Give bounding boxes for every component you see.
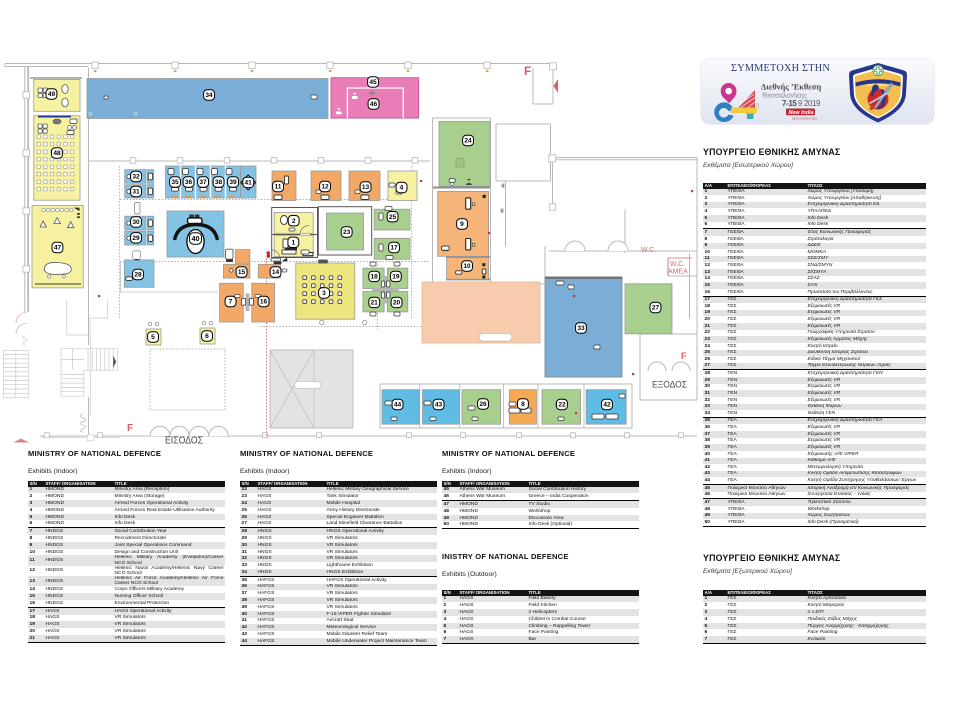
svg-text:12: 12 bbox=[321, 184, 329, 191]
svg-text:F: F bbox=[681, 351, 687, 361]
svg-text:22: 22 bbox=[558, 402, 566, 409]
svg-text:48: 48 bbox=[53, 150, 61, 157]
svg-text:35: 35 bbox=[171, 179, 179, 186]
svg-text:29: 29 bbox=[132, 235, 140, 242]
svg-text:41: 41 bbox=[245, 180, 253, 187]
svg-text:16: 16 bbox=[260, 299, 268, 306]
svg-text:W.C.: W.C. bbox=[641, 247, 656, 254]
svg-text:AMEA: AMEA bbox=[668, 269, 688, 276]
svg-text:47: 47 bbox=[54, 245, 62, 252]
svg-text:New India: New India bbox=[789, 110, 814, 116]
svg-text:27: 27 bbox=[652, 305, 660, 312]
svg-text:45: 45 bbox=[369, 79, 377, 86]
svg-text:7: 7 bbox=[229, 299, 233, 306]
svg-text:η: η bbox=[756, 103, 759, 109]
svg-text:8: 8 bbox=[521, 401, 525, 408]
svg-text:20: 20 bbox=[393, 300, 401, 307]
svg-text:3: 3 bbox=[322, 290, 326, 297]
svg-text:44: 44 bbox=[394, 402, 402, 409]
svg-text:5: 5 bbox=[151, 334, 155, 341]
svg-text:4: 4 bbox=[400, 185, 404, 192]
svg-text:39: 39 bbox=[229, 179, 237, 186]
svg-text:ΕΙΣΟΔΟΣ: ΕΙΣΟΔΟΣ bbox=[165, 436, 203, 447]
svg-text:6: 6 bbox=[205, 333, 209, 340]
svg-text:10: 10 bbox=[463, 263, 471, 270]
svg-text:42: 42 bbox=[603, 402, 611, 409]
svg-text:23: 23 bbox=[343, 229, 351, 236]
svg-text:1: 1 bbox=[291, 240, 295, 247]
svg-text:31: 31 bbox=[132, 189, 140, 196]
svg-text:7-15: 7-15 bbox=[782, 99, 797, 108]
svg-text:38: 38 bbox=[215, 179, 223, 186]
svg-text:15: 15 bbox=[238, 269, 246, 276]
svg-text:34: 34 bbox=[205, 92, 213, 99]
svg-text:9: 9 bbox=[460, 221, 464, 228]
svg-text:11: 11 bbox=[275, 184, 282, 191]
svg-text:25: 25 bbox=[389, 214, 397, 221]
svg-text:40: 40 bbox=[191, 234, 199, 243]
svg-text:ΘΕΣΣΑΛΟΝΙΚΗ 2019: ΘΕΣΣΑΛΟΝΙΚΗ 2019 bbox=[792, 117, 818, 121]
svg-text:43: 43 bbox=[435, 402, 443, 409]
svg-text:21: 21 bbox=[371, 300, 379, 307]
svg-text:W.C.: W.C. bbox=[670, 261, 685, 268]
svg-text:F: F bbox=[524, 64, 531, 78]
svg-text:37: 37 bbox=[199, 179, 207, 186]
svg-text:2: 2 bbox=[292, 218, 296, 225]
svg-text:32: 32 bbox=[132, 174, 140, 181]
svg-text:18: 18 bbox=[371, 274, 379, 281]
svg-text:36: 36 bbox=[185, 179, 193, 186]
svg-text:13: 13 bbox=[362, 184, 370, 191]
svg-text:9 2019: 9 2019 bbox=[798, 99, 821, 108]
svg-text:17: 17 bbox=[390, 245, 398, 252]
svg-text:49: 49 bbox=[48, 91, 56, 98]
svg-text:ΕΞΟΔΟΣ: ΕΞΟΔΟΣ bbox=[652, 380, 687, 391]
svg-text:30: 30 bbox=[132, 219, 140, 226]
svg-text:24: 24 bbox=[464, 138, 472, 145]
svg-text:26: 26 bbox=[479, 401, 487, 408]
svg-text:19: 19 bbox=[392, 274, 400, 281]
svg-text:46: 46 bbox=[370, 101, 378, 108]
svg-text:14: 14 bbox=[272, 269, 280, 276]
svg-text:F: F bbox=[127, 423, 133, 434]
svg-text:28: 28 bbox=[134, 272, 142, 279]
svg-text:33: 33 bbox=[577, 325, 585, 332]
